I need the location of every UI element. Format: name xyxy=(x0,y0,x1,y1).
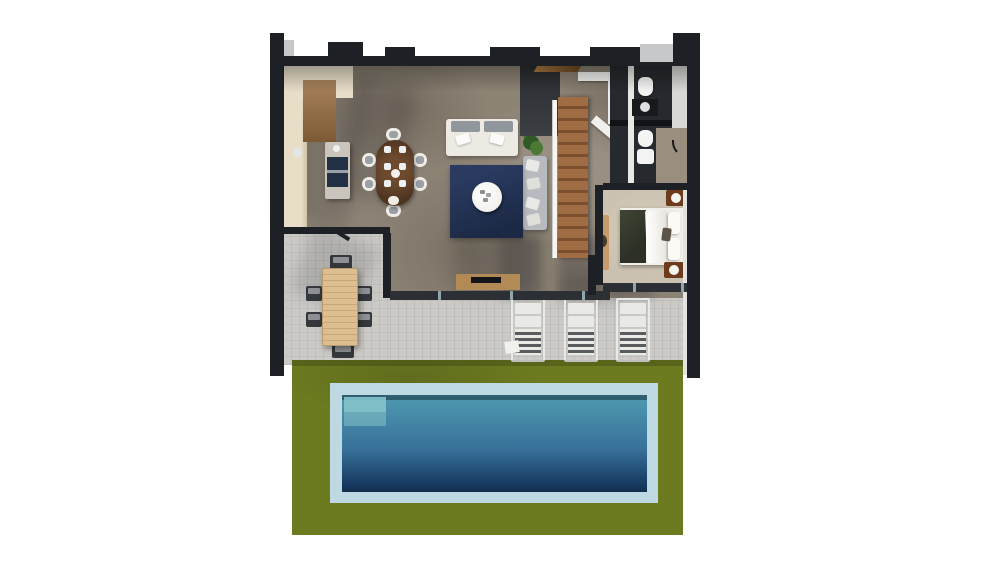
toilet-2 xyxy=(638,130,653,147)
sectional-pillow-1 xyxy=(525,159,540,172)
glass-wall-living xyxy=(390,291,610,300)
bed-throw-blanket xyxy=(620,210,646,263)
parapet-2 xyxy=(385,47,415,56)
lounger-2-slats xyxy=(568,329,594,355)
dining-chair-left-1 xyxy=(362,153,376,167)
staircase xyxy=(558,97,588,258)
terrace-chair-left-2 xyxy=(306,312,322,327)
dining-chair-left-2 xyxy=(362,177,376,191)
kitchen-sink xyxy=(293,148,302,157)
bathroom-wall-divider xyxy=(610,120,672,126)
sofa-white-back-cushion-2 xyxy=(484,121,513,132)
bed-cushion-accent xyxy=(661,227,672,241)
coffee-table-decor xyxy=(480,190,485,194)
coffee-table xyxy=(472,182,502,212)
wall-top-gray-block xyxy=(640,44,673,62)
table-setting-2 xyxy=(399,146,406,153)
sectional-pillow-2 xyxy=(526,177,541,190)
wall-terrace-vertical xyxy=(383,233,391,298)
lounger-3-pad-a xyxy=(620,303,646,314)
lounger-1-pad-b xyxy=(515,316,541,327)
pool-side-mat xyxy=(504,340,520,354)
tv-screen xyxy=(471,277,501,283)
terrace-chair-right-2 xyxy=(356,312,372,327)
sun-lounger-2 xyxy=(564,298,598,362)
parapet-1 xyxy=(328,42,363,56)
top-wall-inner-shadow xyxy=(283,66,687,92)
glass-wall-bedroom xyxy=(603,283,687,292)
pool-steps-lower xyxy=(344,412,386,426)
sun-lounger-3 xyxy=(616,298,650,362)
terrace-chair-bottom xyxy=(332,344,354,358)
wall-right-column xyxy=(687,40,700,378)
terrace-chair-left-1 xyxy=(306,286,322,301)
bed-pillow-2 xyxy=(668,238,680,260)
pool-steps-upper xyxy=(344,397,386,412)
wall-bedroom-bathroom xyxy=(603,183,687,190)
terrace-dining-table xyxy=(322,268,358,346)
nightstand-bottom-lamp xyxy=(669,265,679,275)
parapet-4 xyxy=(590,47,640,56)
table-setting-3 xyxy=(384,163,391,170)
hallway-floor-right xyxy=(656,128,687,188)
sofa-white-back-cushion-1 xyxy=(451,121,480,132)
wall-left-top-gray xyxy=(284,40,294,57)
lounger-3-slats xyxy=(620,329,646,355)
table-centerpiece xyxy=(391,169,400,178)
kitchen-island-front-gap xyxy=(327,170,348,173)
lounger-3-pad-b xyxy=(620,316,646,327)
stair-railing xyxy=(552,100,557,258)
lounger-2-pad-a xyxy=(568,303,594,314)
dining-chair-right-1 xyxy=(413,153,427,167)
pool-wall-shadow xyxy=(342,395,647,400)
dining-chair-right-2 xyxy=(413,177,427,191)
terrace-chair-top xyxy=(330,255,352,269)
terrace-chair-right-1 xyxy=(356,286,372,301)
island-appliance xyxy=(333,145,340,152)
table-setting-5 xyxy=(384,180,391,187)
washbasin-2 xyxy=(637,149,654,164)
wall-left-column xyxy=(270,33,284,376)
dining-chair-top-2 xyxy=(388,196,399,205)
lounger-1-pad-a xyxy=(515,303,541,314)
wall-bedroom-left xyxy=(595,185,603,285)
wall-top-bar xyxy=(283,56,687,66)
table-setting-1 xyxy=(384,146,391,153)
pool-water xyxy=(342,395,647,492)
plant-leaf-4 xyxy=(530,141,543,155)
lounger-2-pad-b xyxy=(568,316,594,327)
table-setting-4 xyxy=(399,163,406,170)
wall-stairwell xyxy=(588,255,596,295)
floor-plan-canvas xyxy=(0,0,1000,561)
table-setting-6 xyxy=(399,180,406,187)
washbasin-bowl xyxy=(640,102,650,112)
grass-top-edge-shadow xyxy=(292,360,683,366)
nightstand-top-lamp xyxy=(671,193,681,203)
parapet-3 xyxy=(490,47,540,56)
